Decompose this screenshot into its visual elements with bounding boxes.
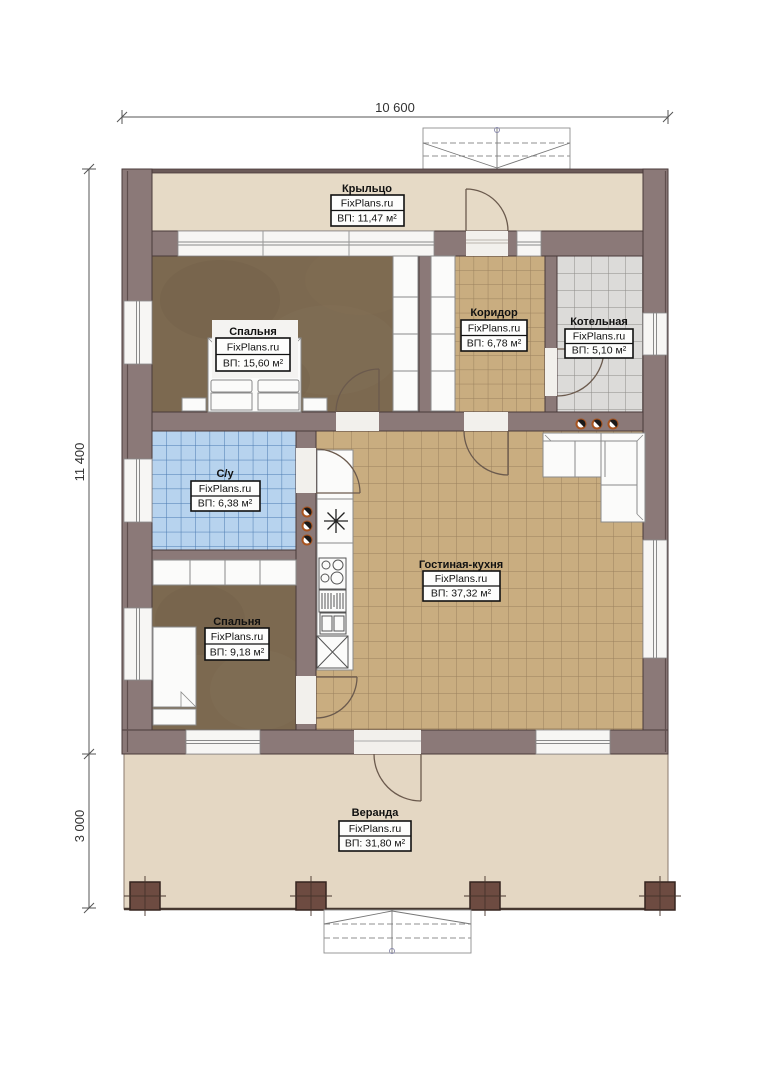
- svg-text:ВП: 37,32 м²: ВП: 37,32 м²: [431, 588, 492, 600]
- svg-text:ВП: 6,78 м²: ВП: 6,78 м²: [467, 338, 522, 350]
- svg-text:ВП: 6,38 м²: ВП: 6,38 м²: [198, 498, 253, 510]
- svg-text:Крыльцо: Крыльцо: [342, 183, 392, 195]
- svg-text:Коридор: Коридор: [470, 307, 518, 319]
- svg-text:Гостиная-кухня: Гостиная-кухня: [419, 559, 503, 571]
- svg-text:Спальня: Спальня: [213, 616, 261, 628]
- svg-text:Веранда: Веранда: [352, 807, 400, 819]
- svg-text:11 400: 11 400: [72, 443, 87, 482]
- svg-text:FixPlans.ru: FixPlans.ru: [573, 331, 626, 343]
- svg-text:FixPlans.ru: FixPlans.ru: [349, 823, 402, 835]
- svg-text:3 000: 3 000: [72, 810, 87, 843]
- svg-text:ВП: 15,60 м²: ВП: 15,60 м²: [223, 358, 284, 370]
- svg-text:FixPlans.ru: FixPlans.ru: [199, 483, 252, 495]
- svg-text:Спальня: Спальня: [229, 326, 277, 338]
- svg-text:FixPlans.ru: FixPlans.ru: [211, 631, 264, 643]
- svg-text:ВП: 9,18 м²: ВП: 9,18 м²: [210, 647, 265, 659]
- svg-text:ВП: 5,10 м²: ВП: 5,10 м²: [572, 345, 627, 357]
- svg-text:FixPlans.ru: FixPlans.ru: [341, 198, 394, 210]
- svg-text:10 600: 10 600: [375, 100, 415, 115]
- svg-text:FixPlans.ru: FixPlans.ru: [435, 573, 488, 585]
- svg-text:FixPlans.ru: FixPlans.ru: [468, 323, 521, 335]
- svg-text:ВП: 11,47 м²: ВП: 11,47 м²: [337, 213, 397, 225]
- svg-text:С/у: С/у: [216, 468, 234, 480]
- svg-text:FixPlans.ru: FixPlans.ru: [227, 342, 280, 354]
- svg-text:Котельная: Котельная: [570, 316, 628, 328]
- svg-text:ВП: 31,80 м²: ВП: 31,80 м²: [345, 838, 406, 850]
